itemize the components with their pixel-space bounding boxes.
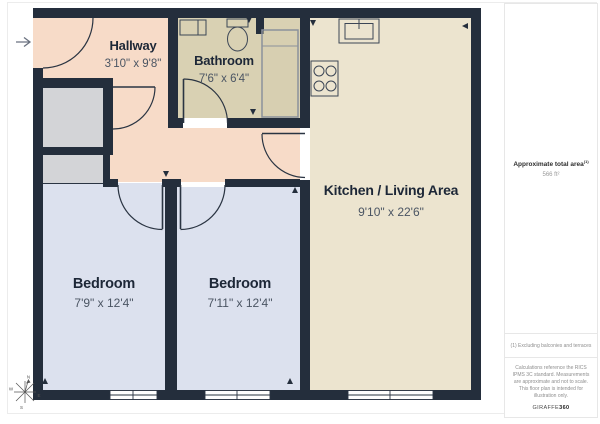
entry-arrow-icon <box>16 38 30 47</box>
bedroom-1-dims: 7'9" x 12'4" <box>74 296 133 310</box>
kitchen-living-floor <box>310 18 471 390</box>
shower-icon <box>262 30 298 117</box>
bathroom-dims: 7'6" x 6'4" <box>199 73 249 85</box>
bathroom-label: Bathroom <box>194 53 254 68</box>
disclaimer-text: Calculations reference the RICS IPMS 3C … <box>511 365 591 400</box>
total-area-label-text: Approximate total area <box>513 162 583 169</box>
footnote-section: (1) Excluding balconies and terraces <box>505 334 597 358</box>
floor-plan-page: N E S W Hallway Bathroom Kitchen / Livin… <box>0 0 600 424</box>
closet-2 <box>43 155 103 183</box>
hallway-label: Hallway <box>109 38 157 53</box>
total-area-superscript: (1) <box>584 159 589 164</box>
brand-logo: GIRAFFE360 <box>532 405 569 411</box>
compass-w: W <box>9 387 14 392</box>
closet-1 <box>43 88 103 147</box>
entry-threshold-floor <box>33 18 43 68</box>
total-area-section: Approximate total area(1) 566 ft² <box>505 4 597 334</box>
bedroom-1-label: Bedroom <box>73 276 135 292</box>
kitchen-living-dims: 9'10" x 22'6" <box>358 205 424 219</box>
disclaimer-section: Calculations reference the RICS IPMS 3C … <box>505 358 597 417</box>
brand-name: GIRAFFE <box>532 405 559 411</box>
brand-suffix: 360 <box>559 405 569 411</box>
hallway-dims: 3'10" x 9'8" <box>105 58 162 70</box>
bedroom-2-window <box>205 391 270 400</box>
room-floors <box>33 18 471 390</box>
compass-s: S <box>20 405 23 410</box>
closets <box>43 88 103 184</box>
compass-e: E <box>37 393 40 398</box>
bedroom-2-dims: 7'11" x 12'4" <box>208 296 273 310</box>
info-panel: Approximate total area(1) 566 ft² (1) Ex… <box>504 3 598 418</box>
bedroom-2-label: Bedroom <box>209 276 271 292</box>
compass-n: N <box>27 374 30 379</box>
bedroom-1-window <box>110 391 157 400</box>
total-area-value: 566 ft² <box>542 172 559 178</box>
kitchen-living-label: Kitchen / Living Area <box>324 182 459 198</box>
shower-tray <box>263 31 297 116</box>
kitchen-window <box>348 391 433 400</box>
total-area-label: Approximate total area(1) <box>513 159 588 168</box>
